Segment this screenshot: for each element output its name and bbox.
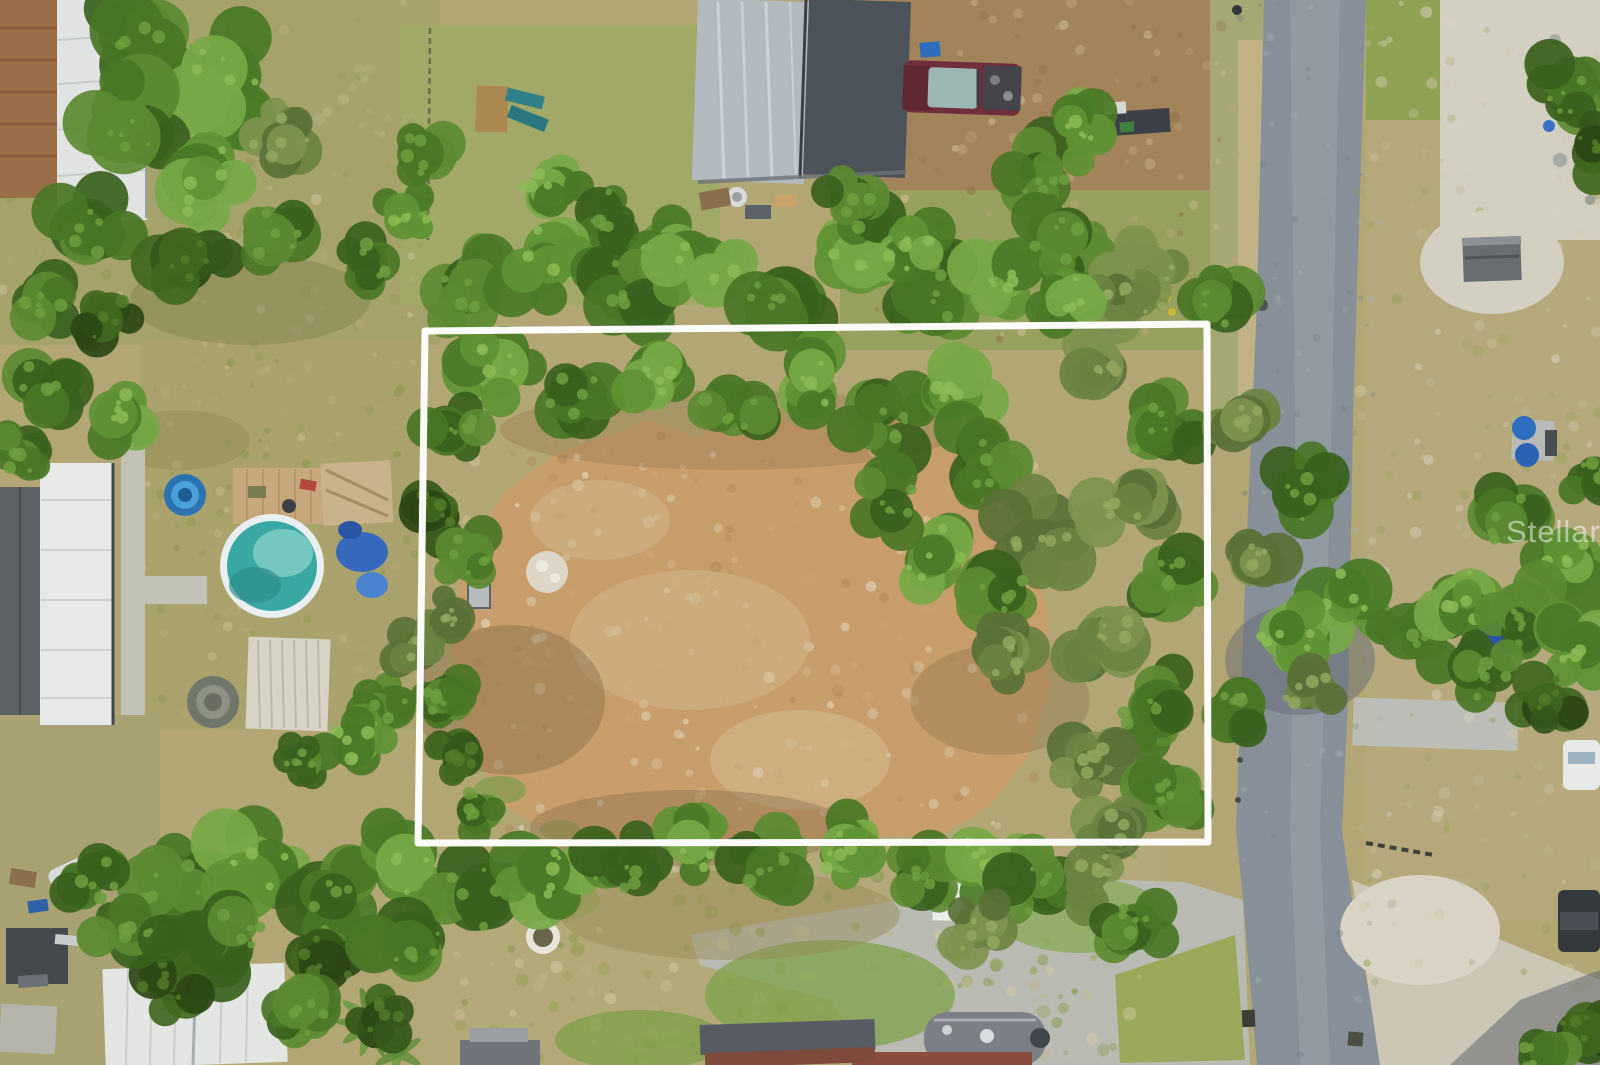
speckle-right-strip	[1356, 188, 1364, 196]
tree-highlight	[1102, 623, 1106, 627]
tree-highlight	[436, 932, 440, 936]
tree-highlight	[342, 735, 352, 745]
tree-highlight	[95, 218, 103, 226]
speckle-right-strip	[1481, 100, 1487, 106]
speckle-right-strip	[1372, 869, 1382, 879]
barrel-blue	[1512, 416, 1536, 440]
tree-highlight	[360, 238, 374, 252]
tree-highlight	[316, 963, 322, 969]
speckle-lot	[945, 747, 955, 757]
tree-highlight	[457, 888, 469, 900]
tree-highlight	[382, 712, 394, 724]
speckle-dirt-top	[1000, 332, 1005, 337]
tree-highlight	[1102, 854, 1108, 860]
speckle-dirt-top	[1179, 212, 1184, 217]
tree-highlight	[218, 146, 226, 154]
speckle-right-strip	[1563, 443, 1571, 451]
speckle-road	[1360, 173, 1363, 176]
tree-highlight	[1238, 405, 1245, 412]
speckle-dirt-top	[1165, 229, 1174, 238]
tree-highlight	[182, 206, 193, 217]
tree-highlight	[973, 479, 982, 488]
speckle-lot	[863, 692, 873, 702]
speckle-right-strip	[1412, 490, 1423, 501]
tree-highlight	[743, 874, 757, 888]
speckle-dirt-top	[1189, 201, 1198, 210]
speckle-road	[1338, 753, 1342, 757]
tree-highlight	[284, 761, 290, 767]
speckle-pool-yard	[202, 341, 207, 346]
tree-highlight	[1049, 176, 1059, 186]
tree-highlight	[1306, 629, 1315, 638]
tree-highlight	[119, 388, 132, 401]
speckle-road	[1267, 34, 1275, 42]
speckle-bottom-yard	[1086, 1033, 1098, 1045]
road-post	[1235, 797, 1241, 803]
pool-water-shade	[229, 567, 281, 603]
white-car	[1563, 740, 1600, 790]
truck-bed-clutter	[990, 75, 1000, 85]
tree-highlight	[1255, 551, 1261, 557]
speckle-lot	[896, 796, 903, 803]
tree-highlight	[972, 851, 980, 859]
speckle-lot	[803, 667, 812, 676]
speckle-road	[1368, 296, 1375, 303]
speckle-right-strip	[1535, 799, 1541, 805]
speckle-bottom-yard	[533, 981, 545, 993]
speckle-topleft	[358, 121, 366, 129]
tree-highlight	[184, 195, 194, 205]
tree-canopy	[1228, 708, 1267, 747]
speckle-bottom-yard	[570, 997, 576, 1003]
speckle-topleft	[348, 83, 357, 92]
speckle-right-strip	[1409, 109, 1419, 119]
tree-canopy	[345, 914, 404, 973]
speckle-right-strip	[1487, 338, 1497, 348]
tree-highlight	[590, 376, 598, 384]
speckle-dirt-top	[1174, 123, 1182, 131]
tree-highlight	[394, 957, 399, 962]
tree-highlight	[114, 406, 122, 414]
tree-highlight	[1096, 742, 1109, 755]
speckle-road	[1237, 14, 1245, 22]
speckle-right-strip	[1489, 969, 1497, 977]
tree-highlight	[1413, 640, 1421, 648]
speckle-topleft	[356, 319, 365, 328]
tree-highlight	[546, 862, 560, 876]
tree-highlight	[680, 848, 687, 855]
tree-canopy	[1066, 871, 1096, 901]
speckle-road	[1319, 748, 1325, 754]
speckle-right-strip	[1375, 971, 1380, 976]
tree-highlight	[624, 865, 629, 870]
tree-highlight	[467, 415, 478, 426]
tree-highlight	[556, 373, 568, 385]
speckle-right-strip	[1414, 363, 1422, 371]
speckle-dirt-top	[1228, 104, 1236, 112]
tree-highlight	[440, 512, 445, 517]
cart-dark-bit	[1545, 430, 1557, 456]
speckle-right-strip	[1545, 307, 1550, 312]
speckle-topleft	[332, 172, 337, 177]
tree-highlight	[1500, 671, 1511, 682]
speckle-road	[1245, 324, 1250, 329]
speckle-right-strip	[1578, 229, 1588, 239]
speckle-lot	[509, 450, 516, 457]
speckle-lot	[925, 646, 932, 653]
speckle-lot	[851, 662, 858, 669]
speckle-right-strip	[1370, 153, 1379, 162]
tree-highlight	[808, 381, 817, 390]
tree-highlight	[1166, 791, 1175, 800]
speckle-right-strip	[1467, 172, 1471, 176]
yard-clutter	[775, 195, 797, 207]
tree-highlight	[1526, 1043, 1534, 1051]
speckle-topleft	[323, 107, 333, 117]
tree-highlight	[281, 853, 289, 861]
tree-highlight	[1120, 292, 1124, 296]
tree-highlight	[299, 948, 311, 960]
tree-highlight	[91, 246, 104, 259]
speckle-dirt-top	[1013, 9, 1022, 18]
tree-highlight	[992, 669, 1000, 677]
speckle-dirt-top	[1215, 61, 1219, 65]
speckle-right-strip	[1511, 811, 1516, 816]
tree-highlight	[479, 346, 486, 353]
tree-highlight	[891, 429, 900, 438]
speckle-bottom-yard	[1071, 989, 1076, 994]
speckle-bottom-yard	[490, 961, 494, 965]
tree-highlight	[1045, 535, 1056, 546]
rock	[1585, 195, 1595, 205]
tree-highlight	[931, 299, 936, 304]
tree-highlight	[820, 861, 833, 874]
speckle-dirt-top	[989, 16, 997, 24]
speckle-lot	[526, 596, 536, 606]
speckle-dirt-top	[1213, 224, 1219, 230]
speckle-dirt-top	[1177, 230, 1183, 236]
speckle-right-strip	[1371, 847, 1377, 853]
speckle-right-strip	[1392, 293, 1403, 304]
tree-highlight	[152, 30, 165, 43]
tree-highlight	[402, 698, 408, 704]
speckle-road	[1295, 350, 1302, 357]
tree-highlight	[1007, 275, 1019, 287]
speckle-bottom-yard	[453, 951, 461, 959]
speckle-right-strip	[1564, 964, 1574, 974]
tree-highlight	[722, 415, 731, 424]
speckle-right-strip	[1520, 969, 1526, 975]
tree-highlight	[938, 524, 947, 533]
tree-highlight	[184, 176, 197, 189]
tree-highlight	[395, 217, 401, 223]
speckle-lot	[682, 474, 688, 480]
speckle-right-strip	[1426, 78, 1437, 89]
tree-highlight	[1017, 575, 1029, 587]
speckle-bottom-yard	[1037, 954, 1048, 965]
tree-highlight	[1134, 512, 1142, 520]
tree-highlight	[1460, 595, 1471, 606]
tree-highlight	[19, 384, 27, 392]
tree-highlight	[176, 994, 181, 999]
speckle-pool-yard	[394, 389, 402, 397]
tree-highlight	[139, 22, 151, 34]
tree-highlight	[912, 872, 921, 881]
speckle-road	[1377, 715, 1383, 721]
tree-highlight	[1577, 76, 1586, 85]
speckle-pool-yard	[215, 487, 224, 496]
speckle-right-strip	[1366, 40, 1372, 46]
speckle-bottom-yard	[571, 942, 585, 956]
tree-highlight	[1239, 692, 1247, 700]
speckle-right-strip	[1358, 412, 1367, 421]
speckle-bottom-yard	[1040, 994, 1045, 999]
tree-highlight	[1261, 549, 1267, 555]
tree-highlight	[1361, 605, 1368, 612]
tree-highlight	[1304, 493, 1317, 506]
speckle-lot	[835, 692, 842, 699]
tree-canopy	[1062, 144, 1095, 177]
tree-highlight	[221, 57, 225, 61]
tree-highlight	[750, 398, 757, 405]
deck-grill	[282, 499, 296, 513]
speckle-bottom-yard	[515, 973, 528, 986]
tree-highlight	[656, 376, 665, 385]
tree-highlight	[827, 851, 832, 856]
speckle-right-strip	[1488, 394, 1493, 399]
tree-highlight	[116, 295, 129, 308]
speckle-road	[1342, 306, 1349, 313]
speckle-pool-yard	[335, 432, 340, 437]
tree-canopy	[77, 916, 118, 957]
speckle-pool-yard	[187, 517, 197, 527]
speckle-bottom-yard	[1137, 974, 1142, 979]
speckle-pool-yard	[175, 524, 179, 528]
speckle-right-strip	[1420, 6, 1432, 18]
speckle-right-strip	[1416, 228, 1428, 240]
tree-highlight	[658, 387, 666, 395]
speckle-road	[1277, 3, 1281, 7]
tree-highlight	[428, 706, 437, 715]
speckle-pool-yard	[227, 359, 235, 367]
speckle-right-strip	[1436, 411, 1441, 416]
tree-highlight	[966, 930, 977, 941]
tree-highlight	[326, 880, 333, 887]
tree-highlight	[1537, 705, 1543, 711]
tree-highlight	[473, 301, 479, 307]
tree-highlight	[855, 261, 863, 269]
speckle-dirt-top	[1150, 75, 1158, 83]
tree-highlight	[1097, 369, 1103, 375]
play-tower	[475, 85, 509, 132]
speckle-lot	[789, 697, 796, 704]
speckle-road	[1313, 334, 1321, 342]
tree-highlight	[1561, 91, 1566, 96]
speckle-right-strip	[1421, 455, 1427, 461]
speckle-pool-yard	[297, 424, 305, 432]
speckle-topleft	[311, 194, 322, 205]
speckle-bottom-yard	[888, 931, 894, 937]
tree-canopy	[1269, 610, 1305, 646]
speckle-road	[1356, 221, 1360, 225]
speckle-right-strip	[1425, 755, 1432, 762]
walkway	[121, 447, 145, 715]
speckle-right-strip	[1441, 170, 1451, 180]
speckle-road	[1366, 324, 1369, 327]
tree-highlight	[991, 281, 997, 287]
speckle-right-strip	[1355, 385, 1367, 397]
speckle-right-strip	[1386, 37, 1393, 44]
speckle-right-strip	[1492, 73, 1498, 79]
speckle-right-strip	[1391, 451, 1397, 457]
speckle-right-strip	[1463, 532, 1470, 539]
speckle-pool-yard	[402, 535, 411, 544]
speckle-road	[1268, 121, 1274, 127]
speckle-pool-yard	[391, 564, 398, 571]
tree-canopy	[811, 175, 844, 208]
tree-highlight	[414, 134, 426, 146]
speckle-right-strip	[1442, 80, 1451, 89]
shed-right-ridge	[1465, 256, 1519, 258]
tree-canopy	[937, 926, 974, 963]
sand-mound	[526, 551, 568, 593]
speckle-lot	[830, 665, 840, 675]
speckle-pool-yard	[373, 353, 378, 358]
tree-highlight	[1076, 298, 1084, 306]
speckle-pool-yard	[263, 453, 270, 460]
tree-highlight	[1038, 535, 1046, 543]
tree-highlight	[846, 193, 859, 206]
speckle-right-strip	[1514, 394, 1525, 405]
speckle-dirt-top	[933, 168, 940, 175]
tree-highlight	[423, 687, 433, 697]
speckle-dirt-top	[1141, 327, 1148, 334]
tree-highlight	[1059, 217, 1066, 224]
tree-highlight	[466, 570, 471, 575]
tree-highlight	[1073, 276, 1078, 281]
tree-highlight	[779, 855, 790, 866]
speckle-pool-yard	[373, 403, 380, 410]
speckle-pool-yard	[258, 439, 263, 444]
speckle-pool-yard	[195, 356, 202, 363]
tree-highlight	[1406, 629, 1419, 642]
tree-highlight	[450, 622, 455, 627]
speckle-lot	[994, 823, 1001, 830]
speckle-right-strip	[1561, 880, 1566, 885]
speckle-lot	[920, 803, 924, 807]
tree-highlight	[405, 133, 415, 143]
speckle-right-strip	[1569, 421, 1580, 432]
tree-canopy	[978, 888, 1011, 921]
tree-highlight	[930, 381, 944, 395]
speckle-lot	[515, 503, 520, 508]
tree-highlight	[98, 311, 109, 322]
speckle-pool-yard	[380, 569, 386, 575]
walkway-stub	[145, 576, 207, 604]
tree-highlight	[37, 292, 45, 300]
speckle-dirt-top	[989, 118, 996, 125]
tree-highlight	[534, 226, 543, 235]
tree-highlight	[169, 264, 175, 270]
tree-highlight	[534, 168, 545, 179]
tree-highlight	[1349, 594, 1359, 604]
speckle-right-strip	[1472, 345, 1484, 357]
tree-highlight	[482, 868, 486, 872]
tree-canopy	[517, 844, 570, 897]
speckle-right-strip	[1464, 712, 1475, 723]
tree-highlight	[1491, 533, 1498, 540]
dark-truck-cab	[1560, 912, 1598, 930]
tree-highlight	[547, 263, 560, 276]
speckle-right-strip	[1434, 908, 1445, 919]
speckle-right-strip	[1456, 186, 1466, 196]
speckle-bottom-yard	[455, 1020, 466, 1031]
tree-canopy	[481, 378, 521, 418]
speckle-bottom-yard	[528, 1021, 534, 1027]
speckle-right-strip	[1507, 729, 1518, 740]
tree-highlight	[449, 427, 454, 432]
tree-highlight	[441, 700, 447, 706]
tree-highlight	[612, 260, 620, 268]
tree-highlight	[551, 849, 559, 857]
tree-highlight	[1562, 557, 1573, 568]
tree-highlight	[1581, 1035, 1588, 1042]
tree-highlight	[313, 935, 320, 942]
speckle-lot	[651, 758, 662, 769]
tree-highlight	[1262, 636, 1273, 647]
tree-canopy	[138, 915, 186, 963]
tree-highlight	[473, 793, 478, 798]
tree-highlight	[1079, 131, 1084, 136]
tree-highlight	[1306, 675, 1319, 688]
tree-highlight	[196, 240, 203, 247]
speckle-road	[1276, 295, 1281, 300]
speckle-right-strip	[1545, 846, 1553, 854]
speckle-lot	[641, 711, 651, 721]
tree-highlight	[479, 557, 489, 567]
tree-highlight	[465, 742, 479, 756]
speckle-topleft	[355, 19, 360, 24]
speckle-right-strip	[1439, 787, 1451, 799]
speckle-road	[1375, 219, 1382, 226]
speckle-road	[1280, 410, 1284, 414]
speckle-bottom-yard	[1067, 1055, 1072, 1060]
speckle-pool-yard	[303, 615, 311, 623]
speckle-lot	[866, 581, 877, 592]
speckle-right-strip	[1455, 522, 1463, 530]
tree-highlight	[557, 856, 561, 860]
tree-canopy	[23, 452, 50, 479]
tree-highlight	[709, 273, 719, 283]
speckle-bottom-yard	[962, 978, 973, 989]
tree-highlight	[74, 223, 84, 233]
speckle-pool-yard	[197, 399, 202, 404]
tree-canopy	[176, 68, 229, 121]
tree-highlight	[236, 934, 247, 945]
tree-highlight	[880, 500, 885, 505]
speckle-right-strip	[1493, 45, 1501, 53]
speckle-dirt-top	[1215, 159, 1220, 164]
tree-highlight	[629, 865, 642, 878]
speckle-right-strip	[1432, 690, 1442, 700]
speckle-right-strip	[1561, 134, 1573, 146]
speckle-road	[1306, 763, 1311, 768]
speckle-right-strip	[1395, 982, 1402, 989]
speckle-pool-yard	[338, 635, 347, 644]
tree-highlight	[331, 886, 343, 898]
tree-highlight	[1092, 864, 1106, 878]
speckle-road	[1351, 430, 1357, 436]
